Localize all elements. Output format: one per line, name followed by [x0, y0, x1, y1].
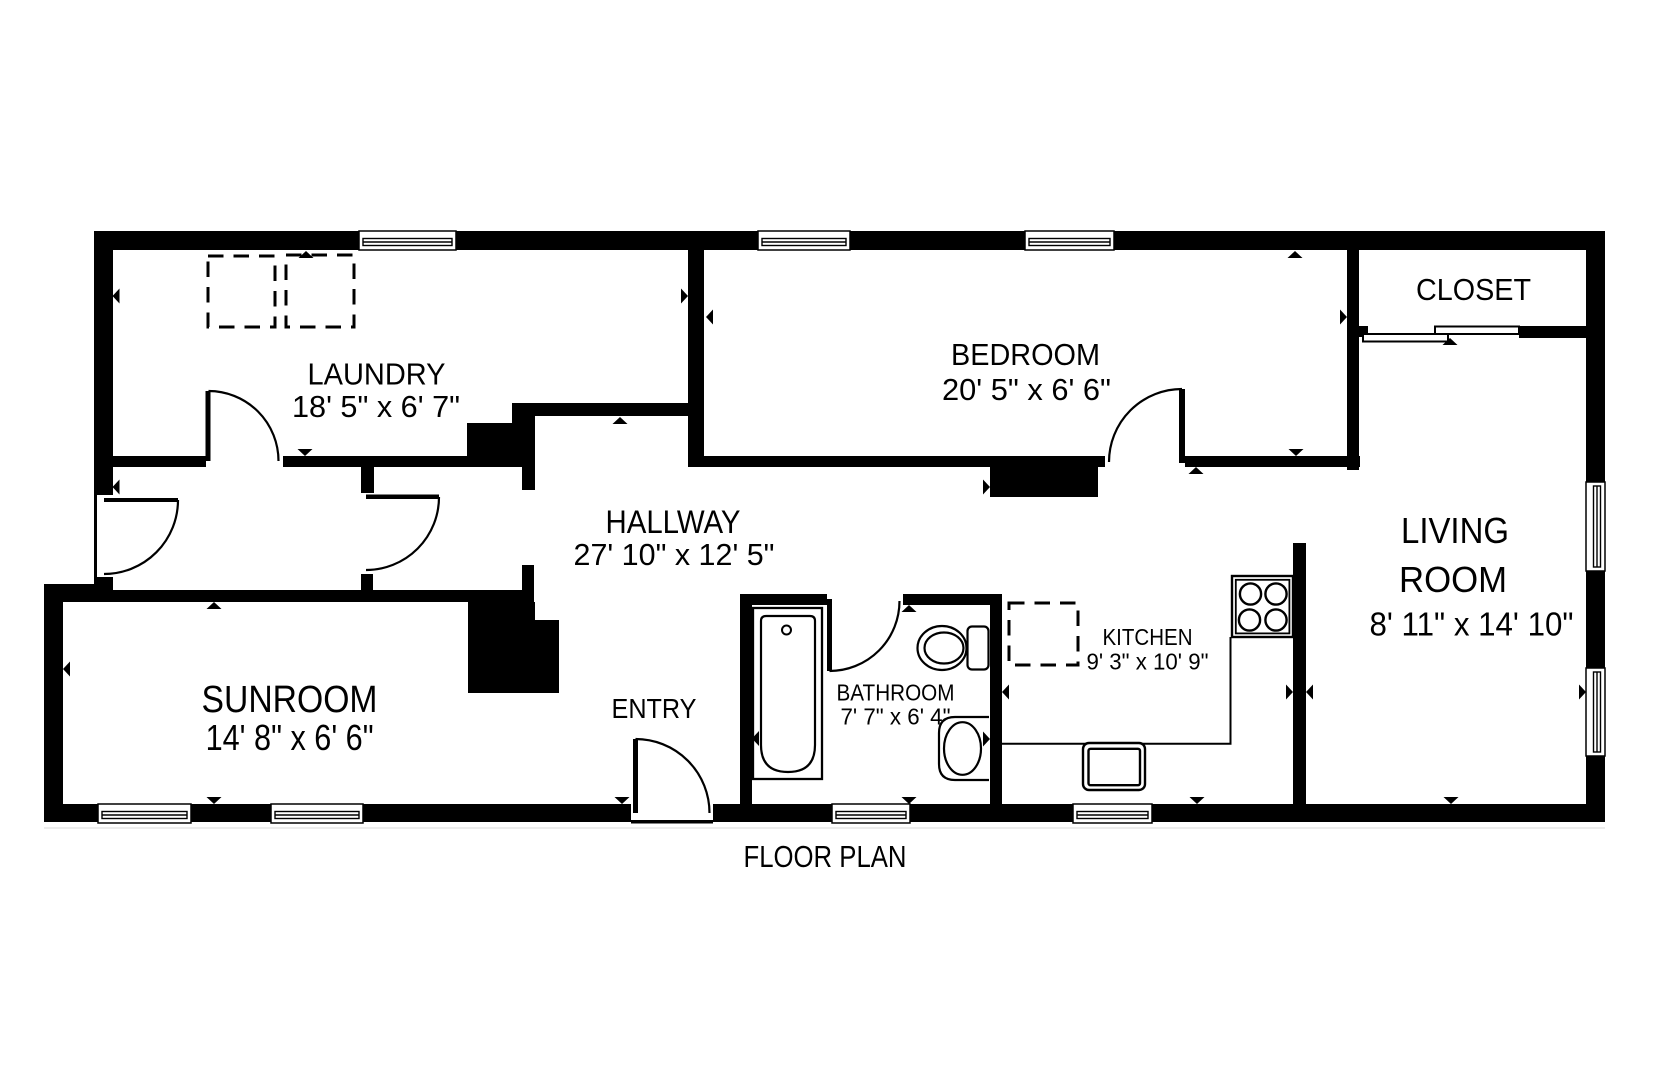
svg-text:ROOM: ROOM [1399, 559, 1507, 600]
svg-text:CLOSET: CLOSET [1416, 272, 1531, 307]
svg-text:HALLWAY: HALLWAY [606, 504, 741, 540]
svg-text:14' 8" x 6' 6": 14' 8" x 6' 6" [206, 717, 374, 758]
svg-text:LIVING: LIVING [1401, 510, 1509, 551]
svg-text:LAUNDRY: LAUNDRY [308, 357, 446, 392]
svg-text:BEDROOM: BEDROOM [951, 337, 1100, 372]
svg-text:SUNROOM: SUNROOM [202, 679, 378, 721]
svg-text:27' 10" x 12' 5": 27' 10" x 12' 5" [574, 537, 775, 572]
svg-text:FLOOR PLAN: FLOOR PLAN [744, 839, 907, 874]
svg-text:8' 11" x 14' 10": 8' 11" x 14' 10" [1370, 606, 1574, 643]
svg-text:9' 3" x 10' 9": 9' 3" x 10' 9" [1087, 649, 1209, 675]
svg-text:7' 7" x 6' 4": 7' 7" x 6' 4" [841, 704, 951, 730]
svg-text:20' 5" x 6' 6": 20' 5" x 6' 6" [942, 372, 1111, 407]
svg-text:18' 5" x 6' 7": 18' 5" x 6' 7" [292, 389, 460, 424]
svg-text:BATHROOM: BATHROOM [837, 680, 955, 706]
svg-text:KITCHEN: KITCHEN [1103, 624, 1193, 650]
svg-text:ENTRY: ENTRY [612, 693, 697, 724]
